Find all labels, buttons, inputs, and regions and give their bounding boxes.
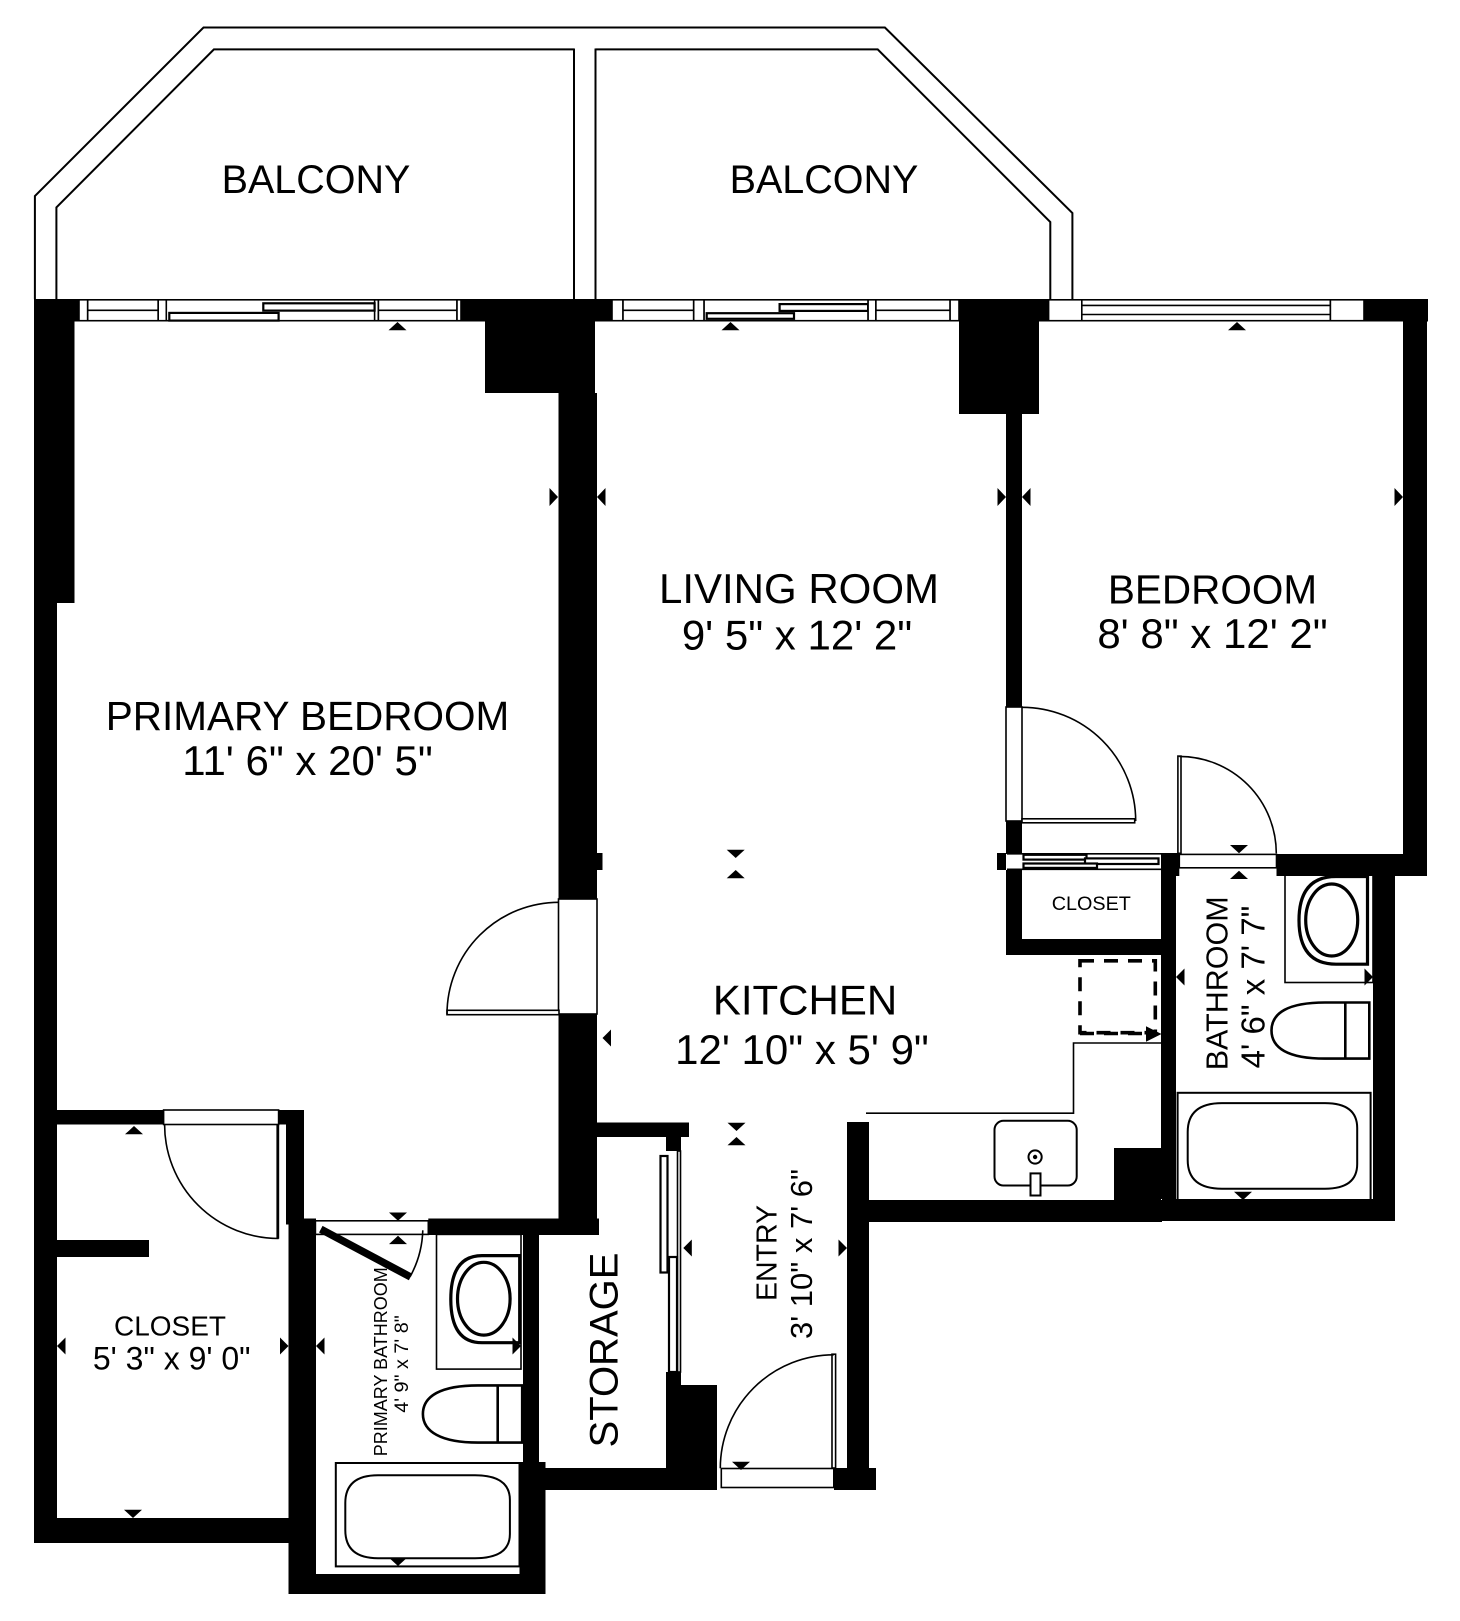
svg-text:5' 3" x 9' 0": 5' 3" x 9' 0" — [93, 1340, 251, 1376]
svg-text:BATHROOM: BATHROOM — [1200, 896, 1234, 1070]
svg-text:BEDROOM: BEDROOM — [1108, 567, 1317, 613]
svg-text:KITCHEN: KITCHEN — [713, 977, 897, 1024]
svg-text:PRIMARY BATHROOM: PRIMARY BATHROOM — [371, 1267, 391, 1456]
svg-text:CLOSET: CLOSET — [114, 1311, 226, 1342]
svg-text:9' 5" x 12' 2": 9' 5" x 12' 2" — [682, 612, 912, 659]
svg-text:11' 6" x 20' 5": 11' 6" x 20' 5" — [182, 737, 433, 784]
svg-text:LIVING ROOM: LIVING ROOM — [659, 565, 939, 612]
svg-text:4' 6" x 7' 7": 4' 6" x 7' 7" — [1235, 906, 1272, 1069]
svg-text:BALCONY: BALCONY — [730, 158, 919, 202]
svg-text:3' 10" x 7' 6": 3' 10" x 7' 6" — [784, 1169, 819, 1339]
svg-text:ENTRY: ENTRY — [751, 1205, 783, 1301]
svg-text:PRIMARY BEDROOM: PRIMARY BEDROOM — [106, 693, 510, 739]
svg-text:CLOSET: CLOSET — [1052, 893, 1131, 915]
svg-text:BALCONY: BALCONY — [222, 158, 411, 202]
svg-text:STORAGE: STORAGE — [583, 1253, 627, 1448]
svg-text:4' 9" x 7' 8": 4' 9" x 7' 8" — [391, 1315, 413, 1412]
svg-text:8' 8" x 12' 2": 8' 8" x 12' 2" — [1097, 610, 1327, 657]
svg-text:12' 10" x 5' 9": 12' 10" x 5' 9" — [675, 1026, 929, 1073]
